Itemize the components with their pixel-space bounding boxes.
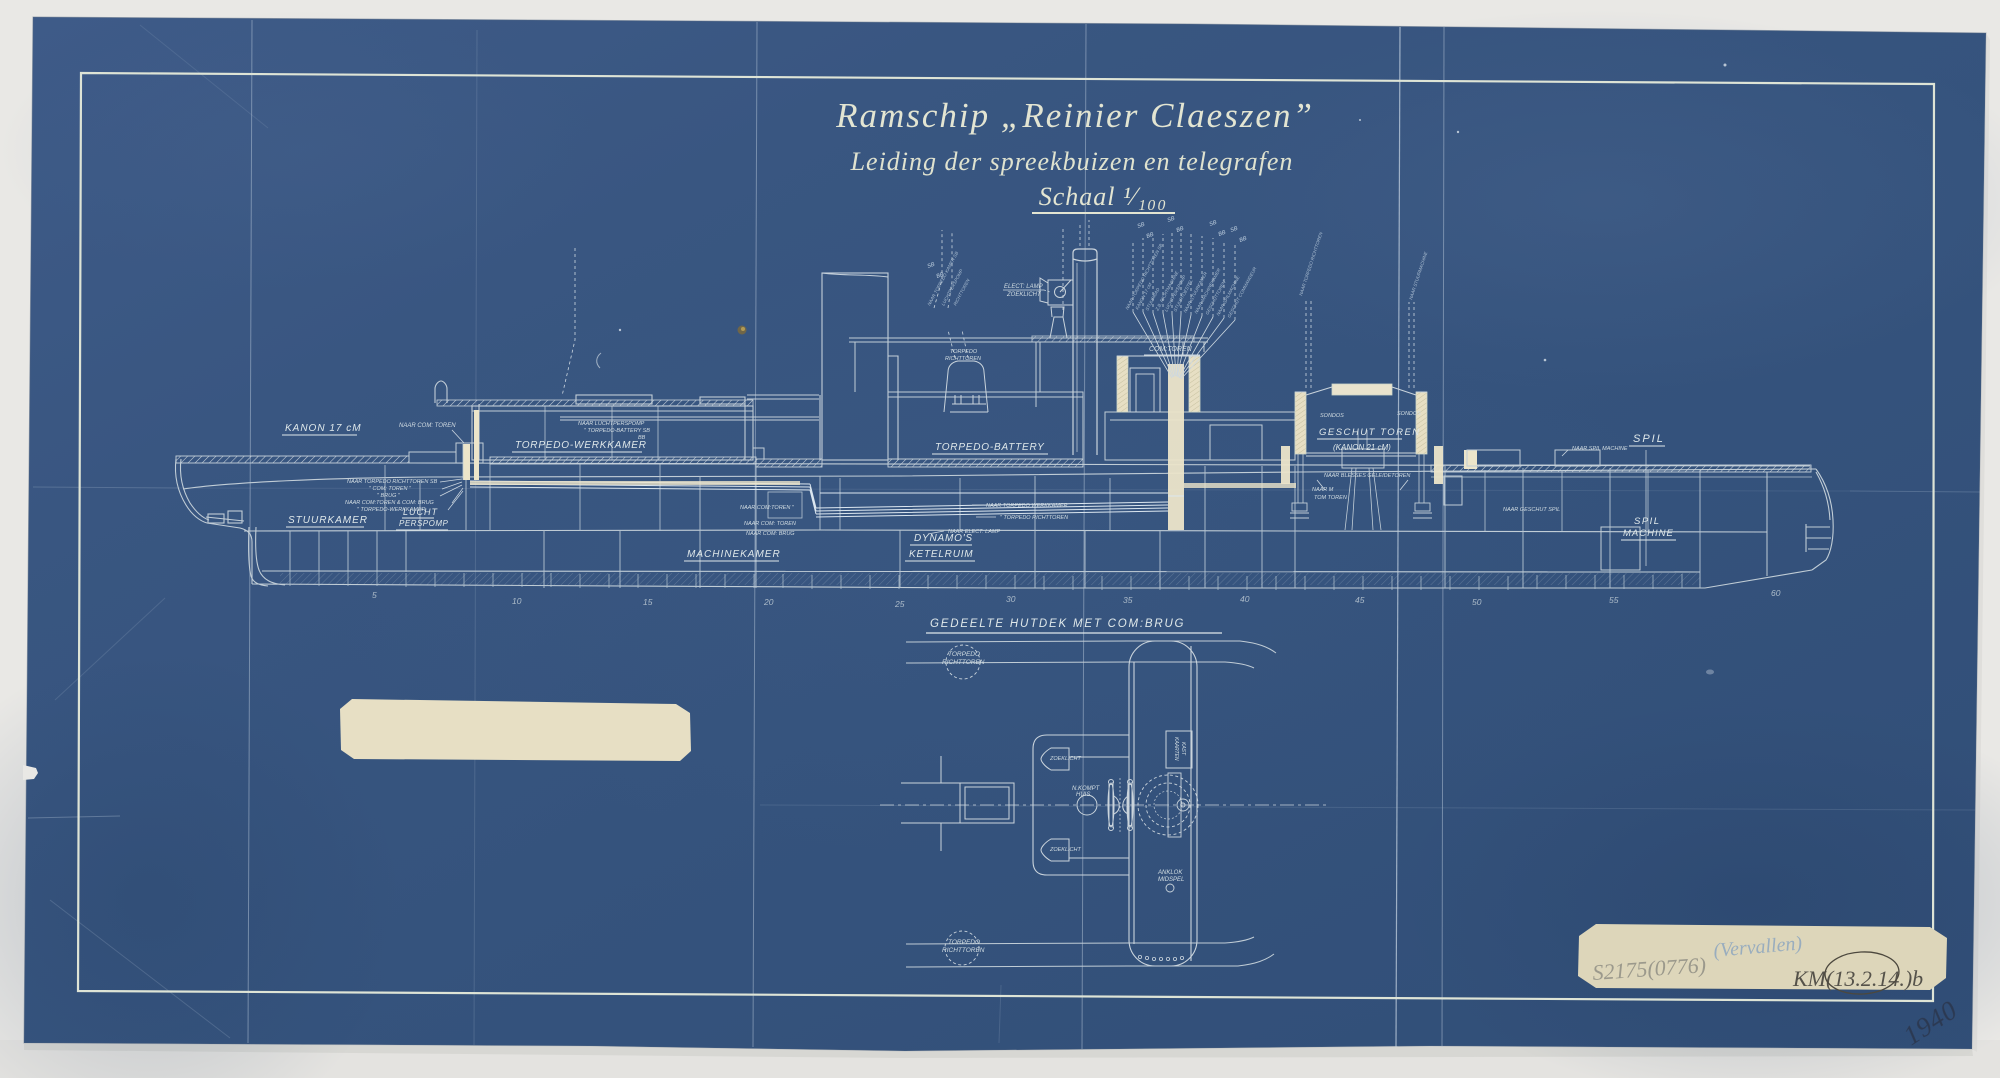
svg-text:KETELRUIM: KETELRUIM — [909, 549, 973, 560]
svg-text:NAAR COM:TOREN & COM: BRUG: NAAR COM:TOREN & COM: BRUG — [345, 500, 435, 506]
svg-text:NAAR COM: TOREN: NAAR COM: TOREN — [399, 423, 456, 429]
svg-text:″ TORPEDO-WERKKAMER: ″ TORPEDO-WERKKAMER — [357, 507, 425, 513]
svg-text:TOM TOREN: TOM TOREN — [1314, 495, 1347, 501]
svg-text:ZOEKLICHT: ZOEKLICHT — [1049, 756, 1082, 762]
svg-text:″ TORPEDO-BATTERY SB: ″ TORPEDO-BATTERY SB — [584, 428, 650, 434]
svg-text:50: 50 — [1472, 597, 1482, 607]
svg-text:TORPEDO: TORPEDO — [950, 349, 978, 355]
svg-text:ZOEKLICHT: ZOEKLICHT — [1006, 292, 1042, 298]
svg-text:″ TORPEDO RICHTTOREN: ″ TORPEDO RICHTTOREN — [1000, 515, 1068, 521]
svg-text:COM:TOREN: COM:TOREN — [1149, 346, 1193, 353]
svg-text:NAAR TORPEDO RICHTTOREN SB: NAAR TORPEDO RICHTTOREN SB — [347, 479, 438, 485]
svg-text:NAAR GESCHUT SPIL: NAAR GESCHUT SPIL — [1503, 507, 1560, 513]
svg-text:PERSPOMP: PERSPOMP — [399, 519, 449, 528]
svg-text:TORPEDO: TORPEDO — [948, 651, 980, 658]
svg-text:NAAR TORPEDO WERKKAMER: NAAR TORPEDO WERKKAMER — [986, 503, 1068, 509]
svg-text:Schaal ¹⁄₁₀₀: Schaal ¹⁄₁₀₀ — [1039, 182, 1168, 211]
svg-text:STUURKAMER: STUURKAMER — [288, 515, 368, 526]
svg-text:HUIS: HUIS — [1076, 792, 1090, 798]
svg-text:RICHTTOREN: RICHTTOREN — [942, 947, 985, 954]
svg-text:45: 45 — [1355, 595, 1365, 605]
svg-text:MIDSPEL: MIDSPEL — [1158, 877, 1184, 883]
svg-text:TORPEDO-WERKKAMER: TORPEDO-WERKKAMER — [515, 440, 647, 451]
svg-text:KAST: KAST — [1180, 742, 1186, 756]
svg-text:RICHTTOREN: RICHTTOREN — [945, 356, 981, 362]
svg-text:ZOEKLICHT: ZOEKLICHT — [1049, 847, 1082, 853]
svg-text:SONDOS: SONDOS — [1320, 413, 1344, 419]
svg-text:NAAR BLESSES GELEIDETOREN: NAAR BLESSES GELEIDETOREN — [1324, 473, 1410, 479]
svg-text:NAAR LUCHTPERSPOMP: NAAR LUCHTPERSPOMP — [578, 421, 645, 427]
svg-text:TORPEDO: TORPEDO — [948, 939, 980, 946]
svg-text:MACHINE: MACHINE — [1623, 528, 1674, 539]
svg-text:40: 40 — [1240, 594, 1250, 604]
svg-text:GESCHUT TOREN: GESCHUT TOREN — [1319, 427, 1421, 438]
svg-text:NAAR COM:TOREN ″: NAAR COM:TOREN ″ — [740, 505, 795, 511]
svg-text:NAAR COM: TOREN: NAAR COM: TOREN — [744, 521, 796, 527]
svg-text:TORPEDO-BATTERY: TORPEDO-BATTERY — [935, 442, 1045, 453]
svg-text:NAAR COM: BRUG: NAAR COM: BRUG — [746, 531, 795, 537]
svg-text:30: 30 — [1006, 594, 1016, 604]
svg-text:20: 20 — [763, 597, 774, 607]
svg-text:35: 35 — [1123, 595, 1133, 605]
svg-text:SPIL: SPIL — [1633, 433, 1665, 445]
svg-text:5: 5 — [372, 590, 377, 600]
svg-text:MACHINEKAMER: MACHINEKAMER — [687, 549, 781, 560]
svg-text:KM(13.2.14.)b: KM(13.2.14.)b — [1792, 966, 1923, 991]
svg-text:″ BRUG ″: ″ BRUG ″ — [377, 493, 401, 499]
svg-text:NAAR SPIL MACHINE: NAAR SPIL MACHINE — [1572, 446, 1628, 452]
svg-text:Leiding der spreekbuizen en te: Leiding der spreekbuizen en telegrafen — [850, 147, 1294, 176]
svg-text:SONDOS: SONDOS — [1397, 411, 1421, 417]
svg-text:60: 60 — [1771, 588, 1781, 598]
svg-text:KAARTEN: KAARTEN — [1173, 737, 1179, 761]
svg-text:BB: BB — [638, 435, 646, 441]
svg-text:25: 25 — [894, 599, 905, 609]
svg-text:Ramschip „Reinier Claeszen”: Ramschip „Reinier Claeszen” — [835, 96, 1314, 135]
svg-text:10: 10 — [512, 596, 522, 606]
svg-text:NAAR ELECT: LAMP: NAAR ELECT: LAMP — [948, 529, 1000, 535]
svg-text:RICHTTOREN: RICHTTOREN — [942, 659, 985, 666]
svg-text:KANON 17 cM: KANON 17 cM — [285, 423, 362, 434]
svg-text:ANKLOK: ANKLOK — [1157, 870, 1183, 876]
svg-text:55: 55 — [1609, 595, 1619, 605]
svg-text:GEDEELTE HUTDEK MET COM:BRUG: GEDEELTE HUTDEK MET COM:BRUG — [930, 618, 1185, 630]
svg-text:15: 15 — [643, 597, 653, 607]
svg-text:″ COM: TOREN ″: ″ COM: TOREN ″ — [369, 486, 412, 492]
svg-text:ELECT: LAMP: ELECT: LAMP — [1004, 284, 1043, 290]
svg-text:(KANON 21 cM): (KANON 21 cM) — [1333, 443, 1391, 452]
svg-text:SPIL: SPIL — [1634, 516, 1661, 527]
